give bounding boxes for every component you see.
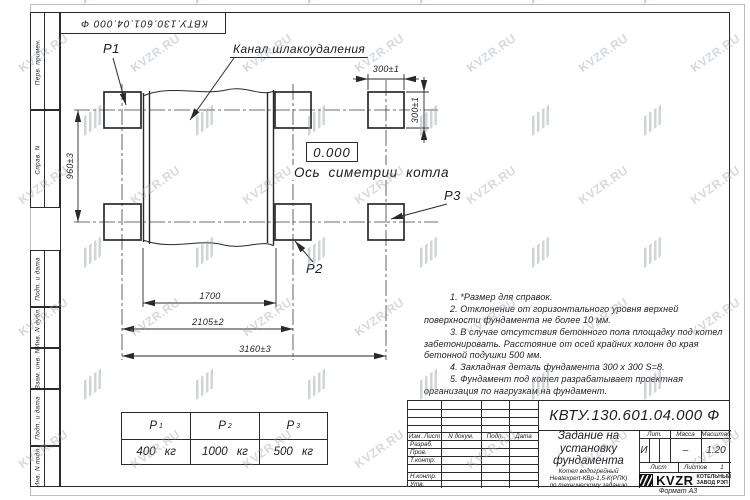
- boiler-axis-label: Ось симетрии котла: [292, 165, 451, 180]
- load-point-p2-label: P2: [306, 261, 323, 276]
- dim-pad-width-300: 300±1: [366, 64, 406, 74]
- dim-channel-1700: 1700: [185, 291, 235, 301]
- level-mark-box: 0.000: [306, 142, 358, 162]
- drawing-text-layer: P1 P2 P3 Канал шлакоудаления 0.000 Ось с…: [0, 0, 750, 500]
- drawing-sheet: Перв. примен. Справ. N Подп. и дата Инв.…: [0, 0, 750, 500]
- dim-pad-height-300: 300±1: [410, 97, 420, 123]
- channel-callout-label: Канал шлакоудаления: [230, 42, 368, 58]
- level-mark-value: 0.000: [313, 145, 351, 160]
- load-point-p3-label: P3: [444, 188, 461, 203]
- dim-mid-2105: 2105±2: [182, 317, 234, 327]
- dim-height-960: 960±3: [65, 153, 75, 179]
- load-point-p1-label: P1: [103, 41, 120, 56]
- dim-overall-3160: 3160±3: [227, 344, 283, 354]
